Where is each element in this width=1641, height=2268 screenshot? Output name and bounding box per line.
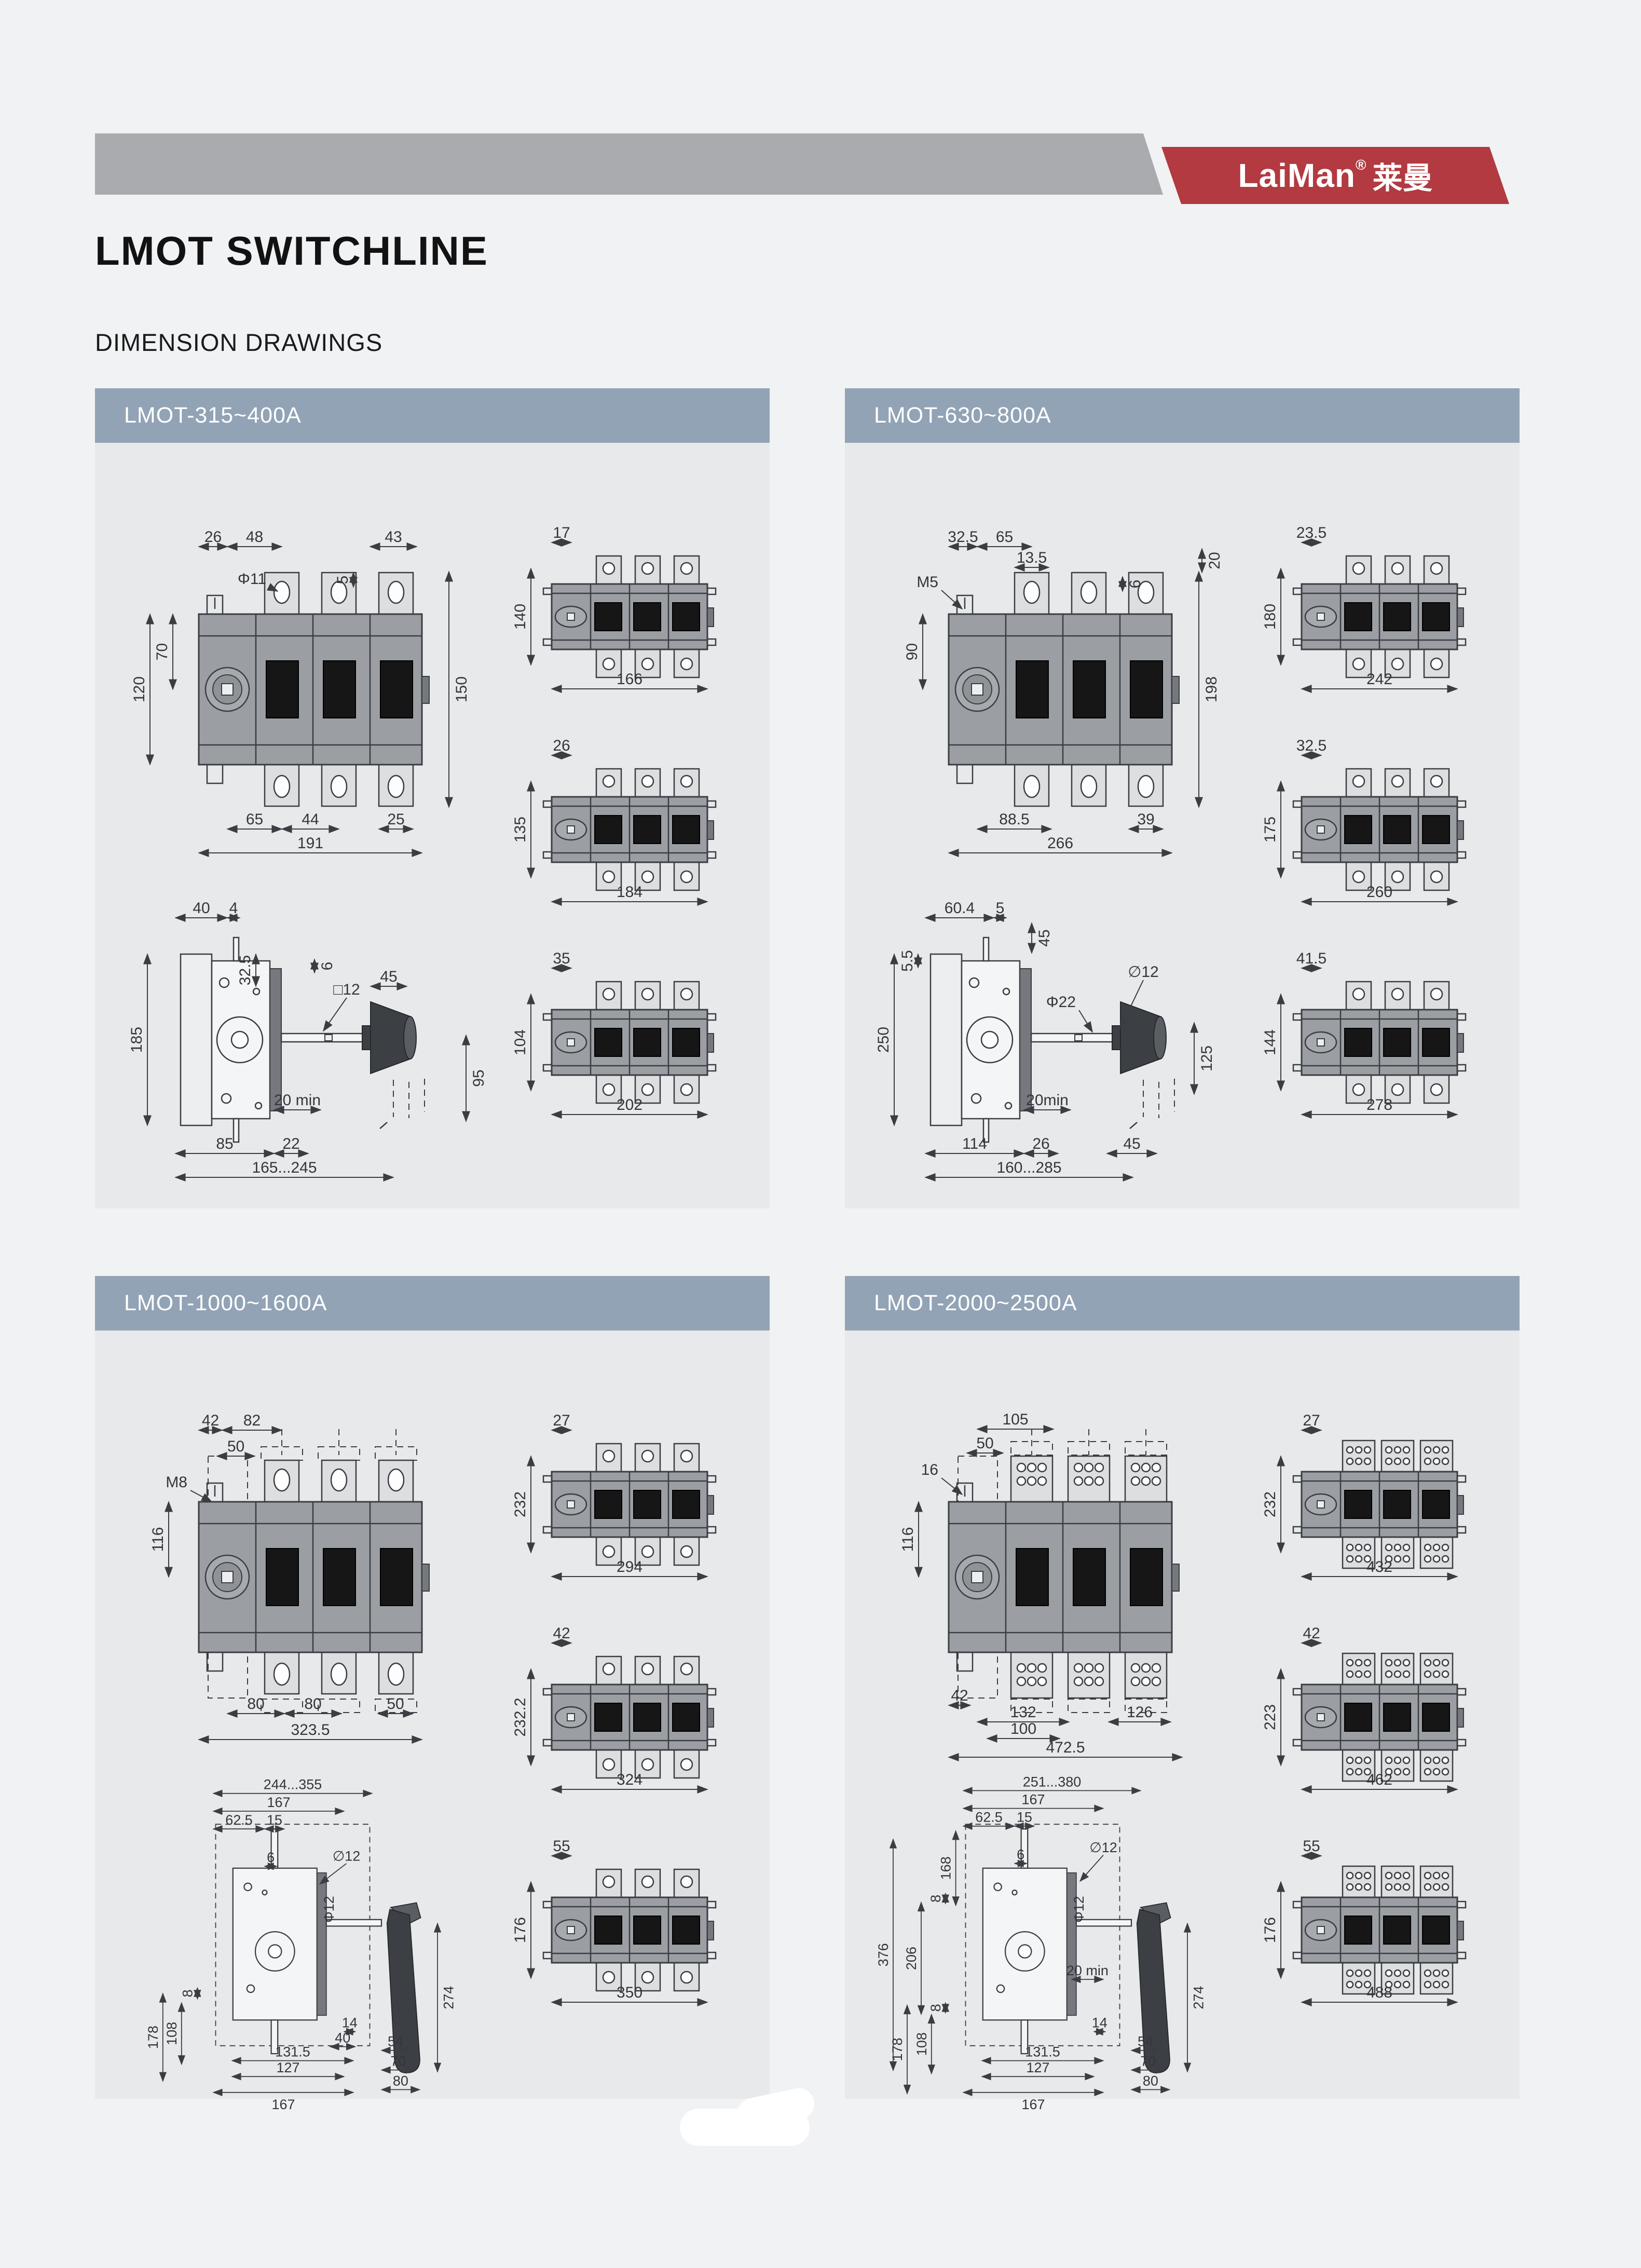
dim-label: 40: [193, 900, 210, 917]
dim-label: 54: [388, 2034, 403, 2049]
top-view-drawing: 27232432: [1260, 1408, 1509, 1595]
dim-label: M8: [166, 1474, 187, 1491]
dim-label: 180: [1262, 604, 1279, 630]
dim-label: 25: [387, 811, 404, 828]
top-view-drawing: 23.5180242: [1260, 521, 1509, 708]
dim-label: 32.5: [948, 528, 978, 546]
dim-label: 432: [1366, 1558, 1392, 1576]
dim-label: 104: [512, 1029, 529, 1055]
side-view-drawing: 40432.564518520 min958522165...245□12: [103, 876, 518, 1198]
top-view-drawing: 41.5144278: [1260, 946, 1509, 1133]
dim-label: 278: [1366, 1096, 1392, 1113]
dim-label: 120: [131, 676, 148, 702]
dim-label: 202: [617, 1096, 642, 1113]
dim-label: 178: [145, 2026, 161, 2049]
dim-label: ∅12: [1089, 1840, 1117, 1855]
side-view-drawing: 251...38016762.51516863762068817810820 m…: [860, 1769, 1234, 2096]
top-view-drawing: 55176350: [510, 1834, 759, 2021]
dim-label: 39: [1137, 811, 1154, 828]
dim-label: 5: [996, 900, 1005, 917]
dim-label: □12: [333, 981, 360, 998]
dim-label: 166: [617, 671, 642, 688]
dim-label: 17: [553, 524, 570, 541]
dim-label: 260: [1366, 884, 1392, 901]
dim-label: 167: [1021, 2097, 1045, 2112]
dim-label: 274: [1191, 1986, 1207, 2009]
dim-label: 80: [304, 1695, 321, 1713]
front-view-drawing: 428250116808050323.5M8: [111, 1398, 505, 1761]
dim-label: 126: [1127, 1704, 1153, 1721]
side-view-drawing: 60.455.54525020min1251142645160...285Φ22…: [853, 876, 1268, 1198]
dim-label: 45: [380, 968, 397, 985]
dim-label: 6: [1017, 1847, 1024, 1863]
top-view-drawing: 55176488: [1260, 1834, 1509, 2021]
dim-label: 55: [1303, 1838, 1320, 1855]
dim-label: 60.4: [945, 900, 975, 917]
brand-logo: LaiMan®莱曼: [1161, 147, 1509, 204]
dim-label: 27: [553, 1412, 570, 1429]
dim-label: 16: [921, 1461, 938, 1478]
dim-label: 45: [1123, 1135, 1140, 1152]
dim-label: 150: [453, 676, 470, 702]
dim-label: 131.5: [275, 2044, 310, 2060]
dim-label: 108: [914, 2032, 929, 2056]
dim-label: 48: [246, 528, 263, 546]
dim-label: 32.5: [1296, 737, 1327, 754]
dim-label: 15: [1017, 1810, 1032, 1825]
dim-label: 43: [385, 528, 402, 546]
dim-label: 167: [267, 1795, 290, 1810]
dim-label: 323.5: [291, 1721, 330, 1739]
dim-label: 8: [928, 2004, 943, 2012]
dim-label: 62.5: [225, 1812, 253, 1828]
dim-label: 42: [1303, 1625, 1320, 1642]
dim-label: 176: [1262, 1917, 1279, 1943]
registered-mark: ®: [1356, 157, 1366, 173]
dim-label: 232: [1262, 1491, 1279, 1517]
dim-label: 125: [1198, 1045, 1215, 1071]
dim-label: 294: [617, 1558, 642, 1576]
dim-label: 26: [204, 528, 222, 546]
header-gray-bar: [95, 133, 1163, 195]
front-view-drawing: 32.56513.56209019888.539266M5: [860, 510, 1255, 874]
dim-label: 80: [393, 2073, 408, 2088]
dim-label: 26: [1032, 1135, 1049, 1152]
dim-label: 144: [1262, 1029, 1279, 1055]
dim-label: 184: [617, 884, 642, 901]
dim-label: 165...245: [252, 1159, 317, 1176]
dim-label: 232: [512, 1491, 529, 1517]
top-view-drawing: 42223462: [1260, 1621, 1509, 1808]
panel-body: 428250116808050323.5M8 244...35516762.51…: [95, 1330, 770, 2099]
top-view-drawing: 42232.2324: [510, 1621, 759, 1808]
dim-label: 15: [267, 1812, 282, 1828]
dim-label: 14: [1092, 2015, 1107, 2031]
datasheet-page: { "header": { "brand": "LaiMan", "reg": …: [0, 0, 1641, 2268]
dim-label: 62.5: [975, 1810, 1003, 1825]
dim-label: 42: [951, 1687, 968, 1704]
dim-label: 6: [1127, 580, 1144, 589]
dim-label: 5: [334, 576, 351, 585]
panel-body: 264843570120150654425191Φ11 40432.564518…: [95, 443, 770, 1208]
panel-header: LMOT-2000~2500A: [845, 1276, 1520, 1330]
dim-label: 191: [297, 835, 323, 852]
page-subtitle: DIMENSION DRAWINGS: [95, 328, 382, 357]
dim-label: 472.5: [1046, 1739, 1085, 1756]
dim-label: 95: [470, 1069, 487, 1087]
dim-label: 6: [319, 962, 336, 971]
dim-label: 116: [899, 1527, 917, 1552]
dim-label: 41.5: [1296, 950, 1327, 967]
dim-label: 70: [1140, 2054, 1156, 2069]
top-view-drawing: 26135184: [510, 734, 759, 920]
dim-label: 232.2: [512, 1697, 529, 1736]
dim-label: 65: [246, 811, 263, 828]
dim-label: M5: [917, 574, 938, 591]
dim-label: 88.5: [999, 811, 1029, 828]
dim-label: 160...285: [996, 1159, 1061, 1176]
panel-lmot-2000-2500a: LMOT-2000~2500A 1055011642132100126472.5…: [845, 1276, 1520, 2099]
dim-label: 244...355: [264, 1777, 322, 1792]
dim-label: 50: [227, 1438, 244, 1455]
dim-label: 50: [976, 1435, 993, 1452]
dim-label: 105: [1002, 1411, 1028, 1428]
dim-label: 198: [1203, 676, 1220, 702]
dim-label: 55: [553, 1838, 570, 1855]
panel-body: 32.56513.56209019888.539266M5 60.455.545…: [845, 443, 1520, 1208]
dim-label: 65: [996, 528, 1013, 546]
dim-label: 82: [243, 1412, 261, 1429]
dim-label: 132: [1010, 1704, 1036, 1721]
dim-label: 251...380: [1023, 1774, 1082, 1789]
front-view-drawing: 264843570120150654425191Φ11: [111, 510, 505, 874]
dim-label: 70: [154, 643, 171, 660]
dim-label: 4: [229, 900, 238, 917]
dim-label: 116: [149, 1527, 167, 1552]
dim-label: 14: [342, 2015, 358, 2031]
dim-label: 167: [271, 2097, 295, 2112]
dim-label: 20min: [1026, 1092, 1069, 1109]
dim-label: 80: [1143, 2073, 1158, 2088]
dim-label: 20: [1206, 552, 1223, 569]
panel-header: LMOT-630~800A: [845, 388, 1520, 443]
dim-label: 185: [128, 1027, 145, 1053]
dim-label: 135: [512, 817, 529, 843]
dim-label: 90: [904, 643, 921, 660]
dim-label: 27: [1303, 1412, 1320, 1429]
top-view-drawing: 32.5175260: [1260, 734, 1509, 920]
dim-label: 167: [1021, 1792, 1045, 1808]
panel-header: LMOT-315~400A: [95, 388, 770, 443]
dim-label: Φ11: [238, 571, 266, 588]
dim-label: 131.5: [1025, 2044, 1060, 2060]
brand-name: LaiMan: [1238, 156, 1355, 195]
dim-label: 324: [617, 1771, 642, 1788]
dim-label: 5.5: [899, 950, 916, 972]
panel-lmot-630-800a: LMOT-630~800A 32.56513.56209019888.53926…: [845, 388, 1520, 1208]
dim-label: 175: [1262, 817, 1279, 843]
dim-label: 100: [1010, 1720, 1036, 1737]
dim-label: 223: [1262, 1704, 1279, 1730]
dim-label: 176: [512, 1917, 529, 1943]
dim-label: 376: [876, 1943, 891, 1966]
dim-label: 40: [335, 2030, 350, 2046]
dim-label: 266: [1047, 835, 1073, 852]
dim-label: 70: [390, 2054, 406, 2069]
dim-label: 8: [928, 1895, 943, 1903]
dim-label: Φ12: [1071, 1896, 1087, 1923]
dim-label: 274: [441, 1986, 457, 2009]
panel-lmot-315-400a: LMOT-315~400A 264843570120150654425191Φ1…: [95, 388, 770, 1208]
dim-label: 45: [1036, 929, 1053, 946]
dim-label: 242: [1366, 671, 1392, 688]
dim-label: 22: [282, 1135, 299, 1152]
dim-label: 20 min: [274, 1092, 321, 1109]
dim-label: ∅12: [1128, 963, 1159, 981]
dim-label: 44: [302, 811, 319, 828]
dim-label: 26: [553, 737, 570, 754]
dim-label: 127: [276, 2060, 299, 2075]
dim-label: Φ12: [321, 1896, 337, 1923]
front-view-drawing: 1055011642132100126472.516: [860, 1398, 1255, 1761]
dim-label: 42: [553, 1625, 570, 1642]
panel-header: LMOT-1000~1600A: [95, 1276, 770, 1330]
dim-label: 250: [875, 1027, 892, 1053]
dim-label: 50: [387, 1695, 404, 1713]
dim-label: 8: [180, 1989, 196, 1997]
dim-label: 206: [904, 1947, 919, 1970]
panel-lmot-1000-1600a: LMOT-1000~1600A 428250116808050323.5M8 2…: [95, 1276, 770, 2099]
dim-label: Φ22: [1046, 994, 1076, 1011]
dim-label: 108: [164, 2022, 180, 2045]
panel-body: 1055011642132100126472.516 251...3801676…: [845, 1330, 1520, 2099]
dim-label: ∅12: [333, 1848, 361, 1864]
top-view-drawing: 17140166: [510, 521, 759, 708]
dim-label: 80: [247, 1695, 264, 1713]
dim-label: 127: [1026, 2060, 1049, 2075]
page-title: LMOT SWITCHLINE: [95, 227, 488, 275]
dim-label: 488: [1366, 1984, 1392, 2001]
top-view-drawing: 27232294: [510, 1408, 759, 1595]
dim-label: 20 min: [1066, 1963, 1109, 1978]
dim-label: 140: [512, 604, 529, 630]
dim-label: 23.5: [1296, 524, 1327, 541]
dim-label: 114: [962, 1135, 987, 1152]
dim-label: 462: [1366, 1771, 1392, 1788]
dim-label: 54: [1138, 2034, 1153, 2049]
dim-label: 42: [202, 1412, 219, 1429]
dim-label: 6: [267, 1850, 275, 1865]
dim-label: 350: [617, 1984, 642, 2001]
top-view-drawing: 35104202: [510, 946, 759, 1133]
side-view-drawing: 244...35516762.5156817810814402745470801…: [111, 1769, 484, 2096]
dim-label: 168: [938, 1856, 954, 1880]
dim-label: 85: [216, 1135, 233, 1152]
brand-name-cn: 莱曼: [1373, 154, 1433, 197]
dim-label: 178: [890, 2038, 905, 2061]
dim-label: 32.5: [237, 955, 254, 985]
dim-label: 13.5: [1017, 549, 1047, 566]
dim-label: 35: [553, 950, 570, 967]
